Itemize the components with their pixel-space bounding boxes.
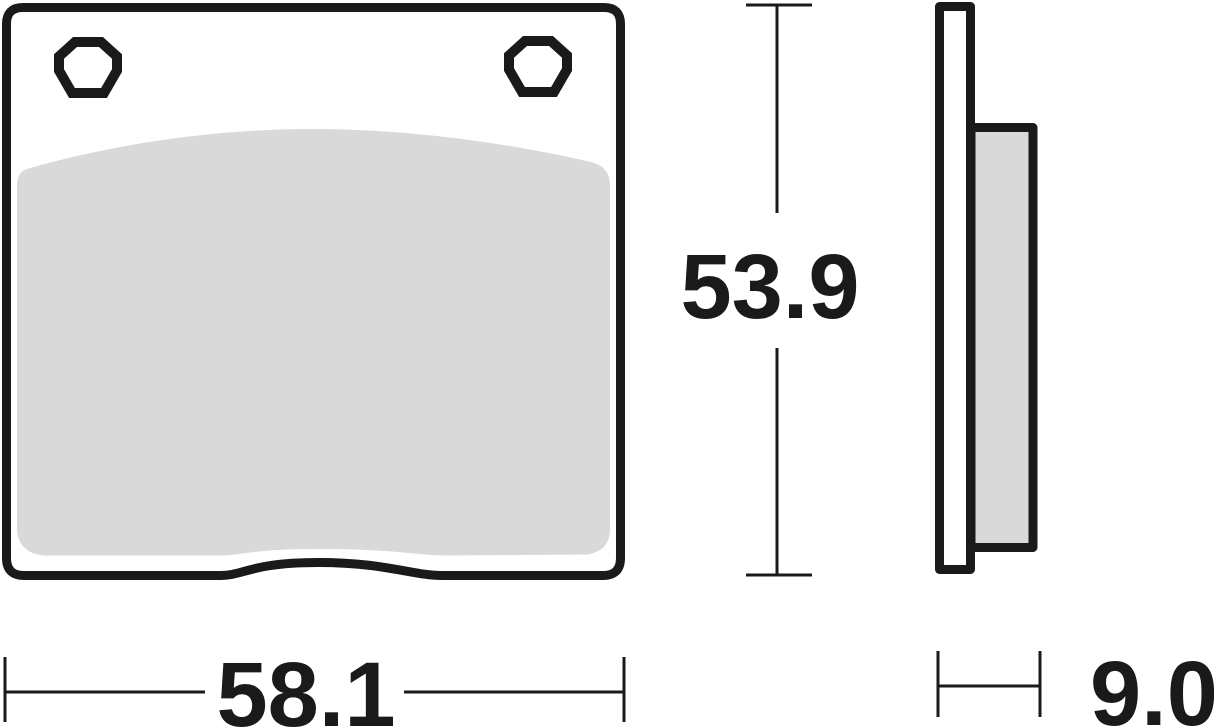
brake-pad-technical-drawing: 53.9 58.1 9.0 [0, 0, 1214, 728]
mounting-hole-left-icon [59, 42, 117, 93]
thickness-dimension: 9.0 [938, 643, 1214, 728]
drawing-canvas: 53.9 58.1 9.0 [0, 0, 1214, 728]
mounting-hole-right-icon [509, 41, 567, 92]
friction-material-side [971, 128, 1033, 548]
height-dimension: 53.9 [680, 5, 859, 575]
backing-plate-side [940, 7, 971, 570]
side-view [940, 7, 1034, 570]
width-dimension-label: 58.1 [216, 644, 395, 728]
front-view [7, 8, 621, 576]
height-dimension-label: 53.9 [680, 236, 859, 338]
friction-material-front [17, 129, 610, 556]
thickness-dimension-label: 9.0 [1090, 643, 1214, 728]
width-dimension: 58.1 [5, 644, 624, 728]
